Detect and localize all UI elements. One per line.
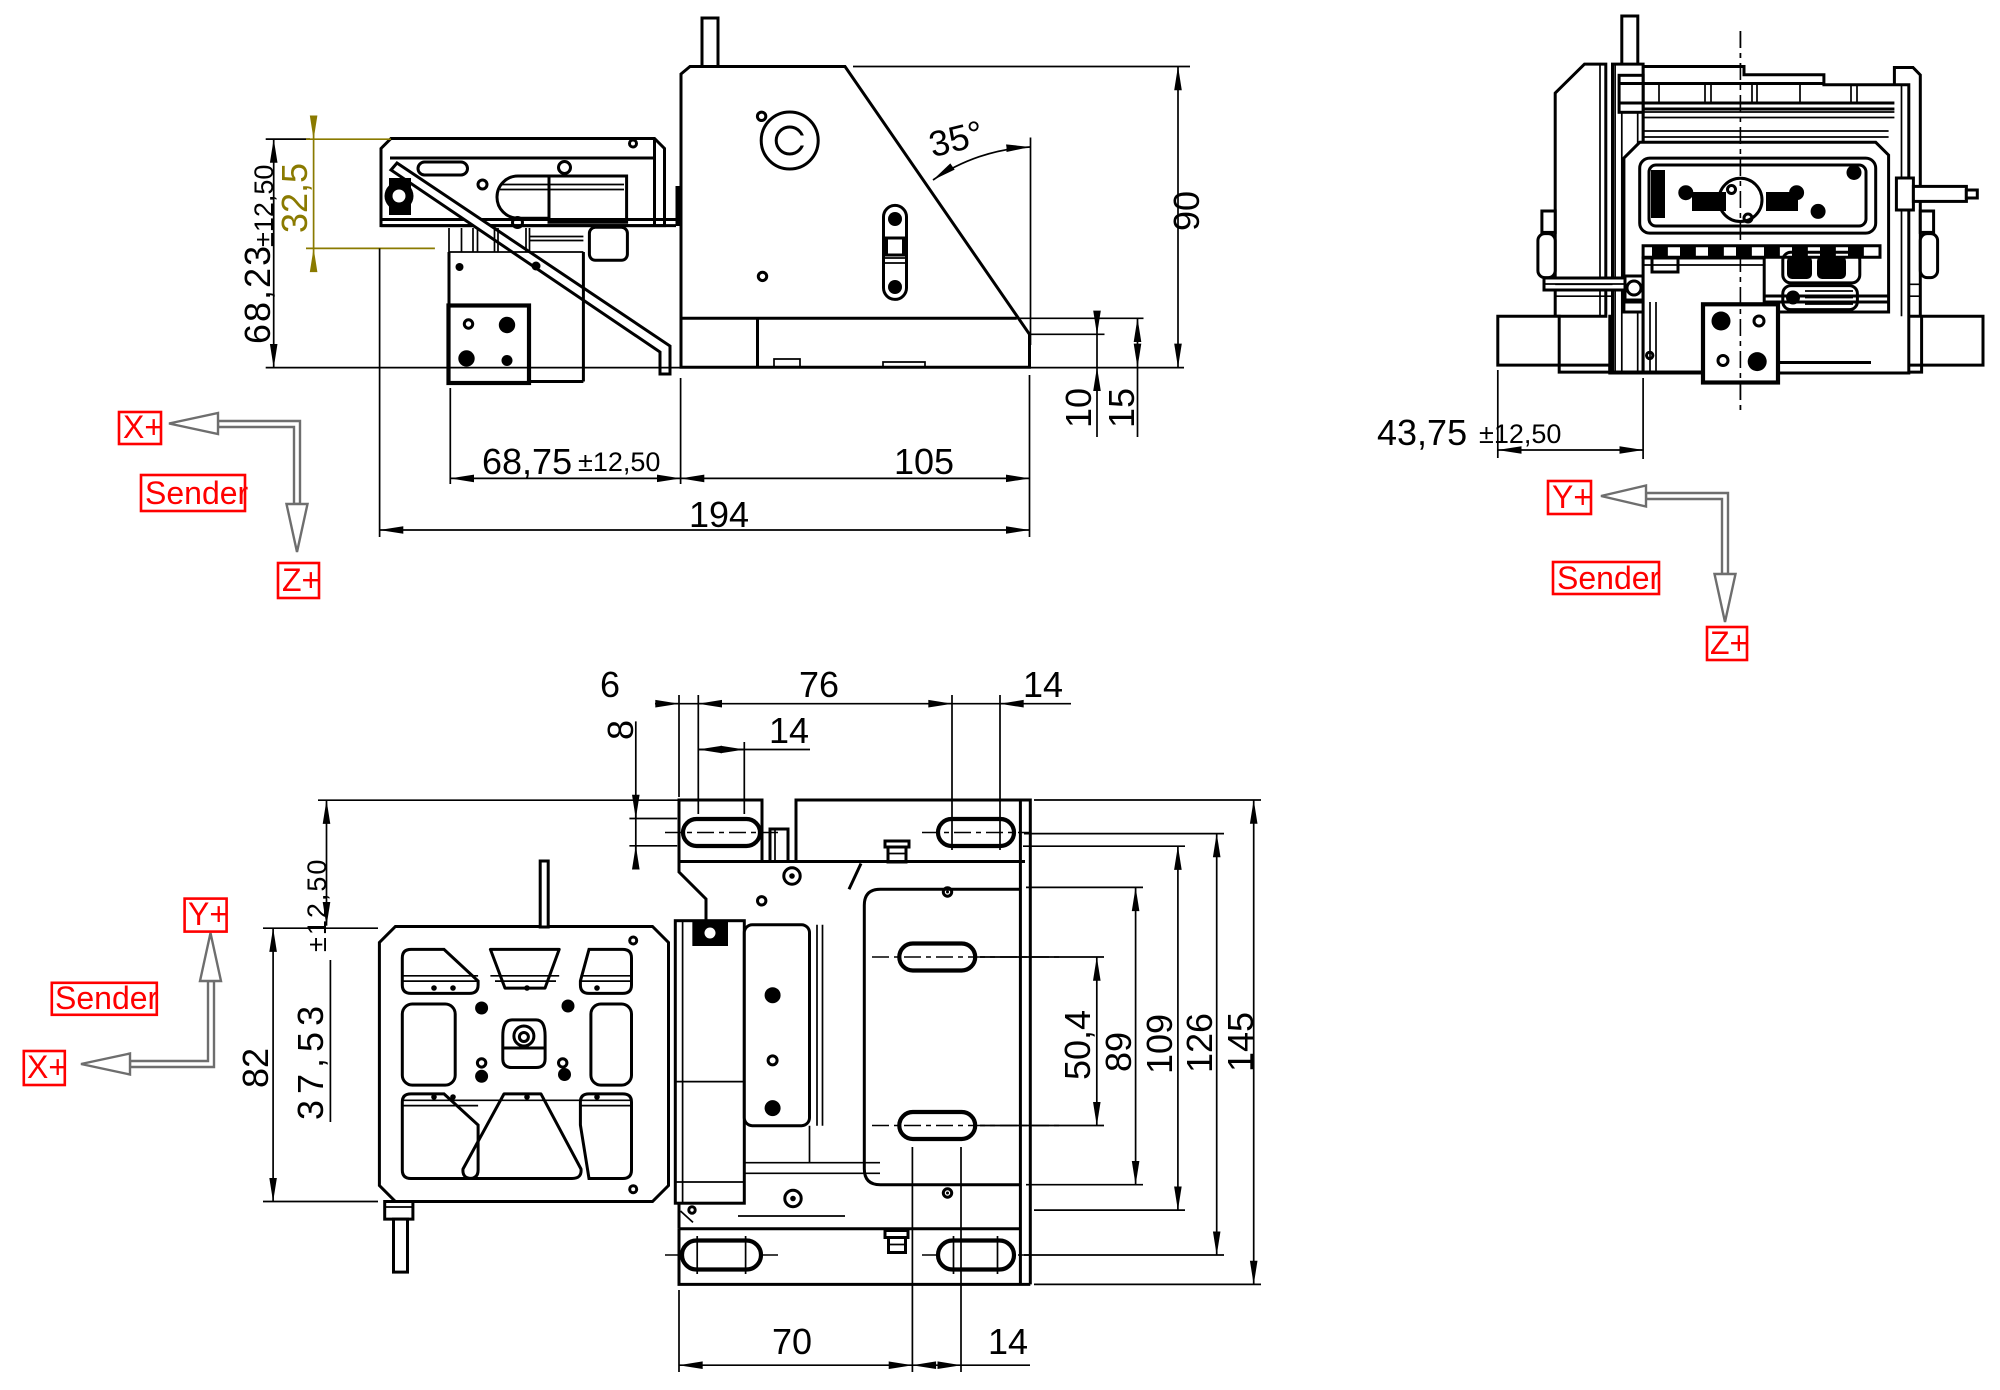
svg-text:Sender: Sender [145, 475, 249, 511]
svg-text:50,4: 50,4 [1057, 1010, 1098, 1080]
svg-text:Y+: Y+ [188, 896, 228, 932]
svg-text:145: 145 [1220, 1012, 1261, 1072]
svg-text:Y+: Y+ [1552, 479, 1592, 515]
svg-text:68,23: 68,23 [237, 244, 278, 344]
svg-text:15: 15 [1101, 388, 1142, 428]
svg-text:10: 10 [1058, 388, 1099, 428]
svg-text:90: 90 [1166, 191, 1207, 231]
svg-text:43,75: 43,75 [1377, 412, 1467, 453]
svg-text:37,53: 37,53 [290, 1000, 331, 1120]
svg-text:14: 14 [988, 1321, 1028, 1362]
svg-text:14: 14 [769, 710, 809, 751]
svg-text:X+: X+ [27, 1049, 67, 1085]
svg-text:8: 8 [600, 720, 641, 740]
svg-text:82: 82 [235, 1048, 276, 1088]
svg-text:105: 105 [894, 441, 954, 482]
svg-text:6: 6 [600, 664, 620, 705]
svg-text:Sender: Sender [1557, 560, 1661, 596]
svg-text:70: 70 [772, 1321, 812, 1362]
svg-text:68,75: 68,75 [482, 441, 572, 482]
svg-text:109: 109 [1139, 1014, 1180, 1074]
svg-text:32,5: 32,5 [274, 163, 315, 233]
svg-text:Sender: Sender [55, 980, 159, 1016]
svg-text:76: 76 [799, 664, 839, 705]
svg-text:±12,50: ±12,50 [1479, 419, 1561, 449]
svg-text:Z+: Z+ [1710, 625, 1748, 661]
svg-text:X+: X+ [123, 409, 163, 445]
svg-text:14: 14 [1023, 664, 1063, 705]
svg-text:126: 126 [1179, 1013, 1220, 1073]
svg-text:Z+: Z+ [282, 562, 320, 598]
svg-text:194: 194 [689, 494, 749, 535]
svg-text:±12,50: ±12,50 [578, 447, 660, 477]
svg-text:±12,50: ±12,50 [302, 858, 332, 952]
svg-text:89: 89 [1098, 1032, 1139, 1072]
